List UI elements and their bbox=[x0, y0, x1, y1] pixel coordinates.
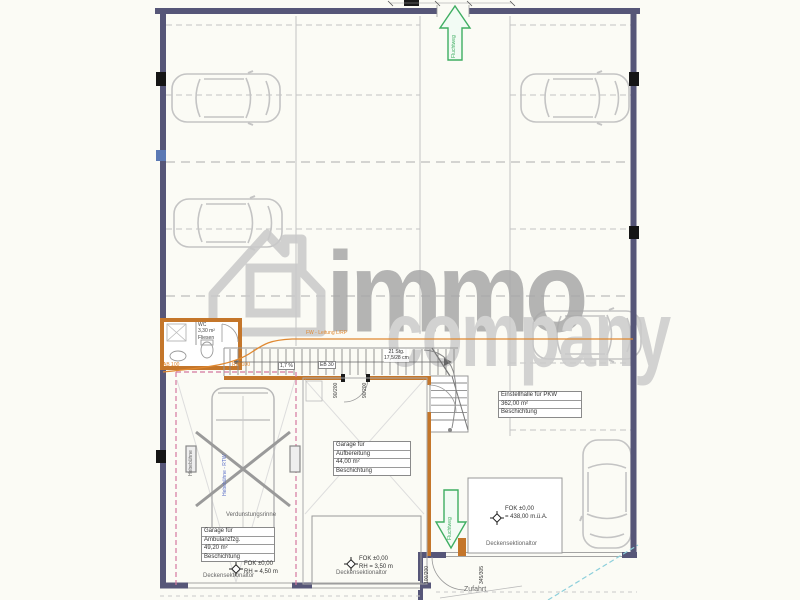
mid-garage bbox=[303, 378, 427, 584]
ambulance-garage-marking bbox=[176, 372, 296, 586]
wall-ticks bbox=[156, 72, 639, 463]
ambulance-vehicle bbox=[186, 388, 300, 538]
interior-orange-walls bbox=[224, 376, 431, 556]
wc-annex bbox=[162, 320, 240, 368]
outer-walls bbox=[155, 8, 640, 600]
floorplan-page: immo company bbox=[0, 0, 800, 600]
person-door-arc bbox=[432, 557, 465, 590]
structure-layer bbox=[0, 0, 800, 600]
hall-storage-room bbox=[468, 478, 562, 553]
